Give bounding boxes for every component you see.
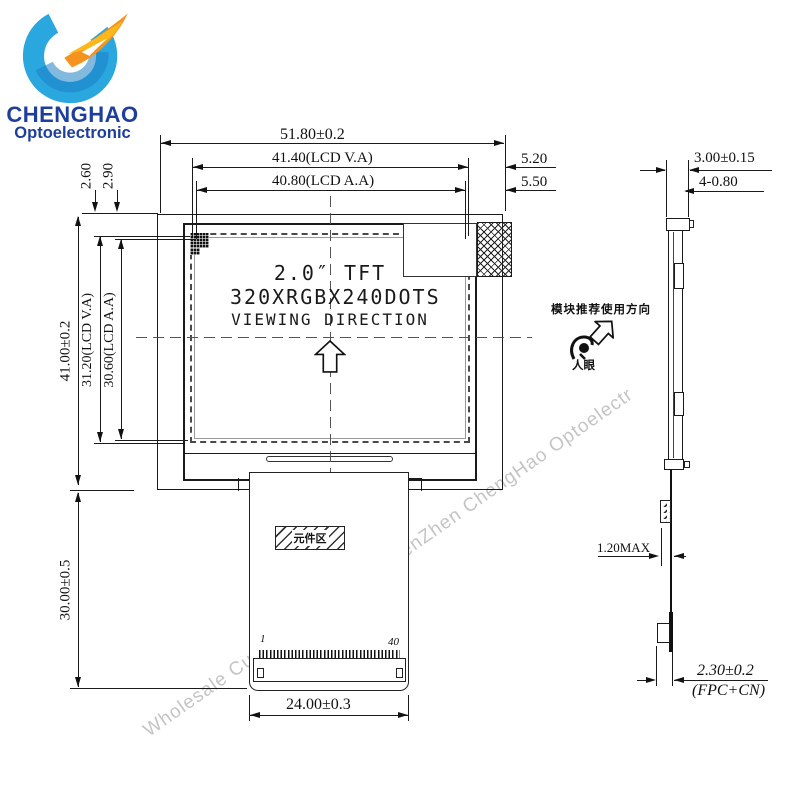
extension-line [115, 440, 188, 441]
extension-line [160, 135, 161, 213]
arrowhead [75, 216, 81, 226]
arrowhead [455, 187, 465, 193]
module-step-right [421, 478, 422, 491]
extension-line [70, 688, 247, 689]
arrowhead [506, 187, 516, 193]
extension-line [115, 239, 194, 240]
dimension-line [690, 170, 772, 171]
dim-top-gap-va: 2.60 [79, 163, 96, 189]
resolution-text: 320XRGBX240DOTS [230, 285, 430, 309]
screen-size-text: 2.0″ TFT [230, 261, 430, 285]
dim-aa-height: 30.60(LCD A.A) [102, 292, 118, 387]
side-bump-upper [674, 263, 684, 289]
human-eye-label: 人眼 [572, 357, 595, 373]
crosshatch-seal-area [477, 222, 512, 277]
dimension-line [250, 715, 408, 716]
extension-line [468, 158, 469, 236]
dimension-line [78, 217, 79, 485]
arrowhead [689, 167, 699, 173]
arrowhead [75, 677, 81, 687]
dim-thickness: 3.00±0.15 [694, 150, 755, 167]
arrowhead [161, 140, 171, 146]
extension-line [408, 695, 409, 721]
arrowhead [118, 239, 124, 249]
arrowhead [649, 553, 659, 559]
side-top-cap-step [689, 220, 694, 228]
logo-mark [14, 2, 130, 106]
dimension-line [78, 493, 79, 687]
arrowhead [250, 712, 260, 718]
dim-aa-width: 40.80(LCD A.A) [272, 173, 374, 190]
dim-va-width: 41.40(LCD V.A) [272, 150, 373, 167]
dimension-line [197, 190, 465, 191]
drawing-canvas: CHENGHAO Optoelectronic Wholesale Custom… [0, 0, 800, 800]
arrowhead [656, 167, 666, 173]
dim-total-width: 51.80±0.2 [280, 126, 345, 144]
dimension-line [121, 240, 122, 439]
dim-va-height: 31.20(LCD V.A) [80, 293, 96, 387]
side-connector [657, 623, 670, 643]
dim-bottom-note: (FPC+CN) [692, 682, 765, 700]
dimension-line [674, 680, 768, 681]
arrowhead [197, 187, 207, 193]
arrowhead [646, 677, 656, 683]
side-bottom-cap [664, 459, 684, 470]
leader-line [598, 556, 656, 557]
dim-right-gap-aa: 5.50 [521, 174, 547, 191]
dim-bottom: 2.30±0.2 [697, 662, 754, 680]
connector-end-right [396, 668, 403, 678]
side-stiffener-hatch [660, 500, 671, 523]
extension-line [656, 646, 657, 686]
dim-fpc-length: 30.00±0.5 [58, 560, 75, 621]
dim-hole: 4-0.80 [699, 174, 738, 191]
leader-line [686, 191, 764, 192]
arrowhead [398, 712, 408, 718]
arrowhead [118, 429, 124, 439]
extension-line [70, 490, 134, 491]
dim-fpc-max: 1.20MAX [597, 540, 650, 556]
arrowhead [97, 236, 103, 246]
dim-right-gap-va: 5.20 [521, 151, 547, 168]
viewing-direction-arrow-icon [314, 340, 346, 373]
arrowhead [114, 202, 120, 212]
dim-connector-width: 24.00±0.3 [286, 696, 351, 714]
dim-total-height: 41.00±0.2 [58, 321, 75, 382]
extension-line [94, 236, 190, 237]
viewing-direction-text: VIEWING DIRECTION [230, 310, 430, 329]
company-subtitle: Optoelectronic [0, 124, 145, 143]
extension-line [672, 652, 673, 686]
component-area-label: 元件区 [292, 530, 329, 546]
side-fpc-line [670, 470, 672, 614]
arrowhead [494, 140, 504, 146]
arrowhead [458, 164, 468, 170]
arrowhead [97, 432, 103, 442]
horizontal-centerline [136, 337, 532, 338]
extension-line [666, 160, 667, 217]
arrowhead [506, 164, 516, 170]
side-bottom-cap-step [684, 461, 690, 468]
connector-body [253, 658, 406, 682]
extension-line [465, 181, 466, 239]
component-area-box: 元件区 [275, 526, 345, 550]
module-step-left [238, 478, 239, 491]
side-bump-lower [674, 392, 684, 416]
connector-end-left [257, 668, 264, 678]
dimension-line [100, 237, 101, 442]
extension-line [82, 213, 158, 214]
dimension-line [193, 167, 468, 168]
company-logo: CHENGHAO Optoelectronic [0, 0, 150, 150]
extension-line [94, 443, 184, 444]
extension-line [661, 528, 662, 566]
pin40-label: 40 [388, 636, 399, 648]
dim-top-gap-aa: 2.90 [101, 163, 118, 189]
extension-line [505, 135, 506, 211]
leader-line [674, 556, 686, 557]
ic-corner-mark-tail [190, 248, 200, 255]
arrowhead [75, 492, 81, 502]
arrowhead [684, 188, 694, 194]
arrowhead [75, 475, 81, 485]
arrowhead [193, 164, 203, 170]
pin1-label: 1 [260, 633, 266, 645]
arrowhead [92, 202, 98, 212]
